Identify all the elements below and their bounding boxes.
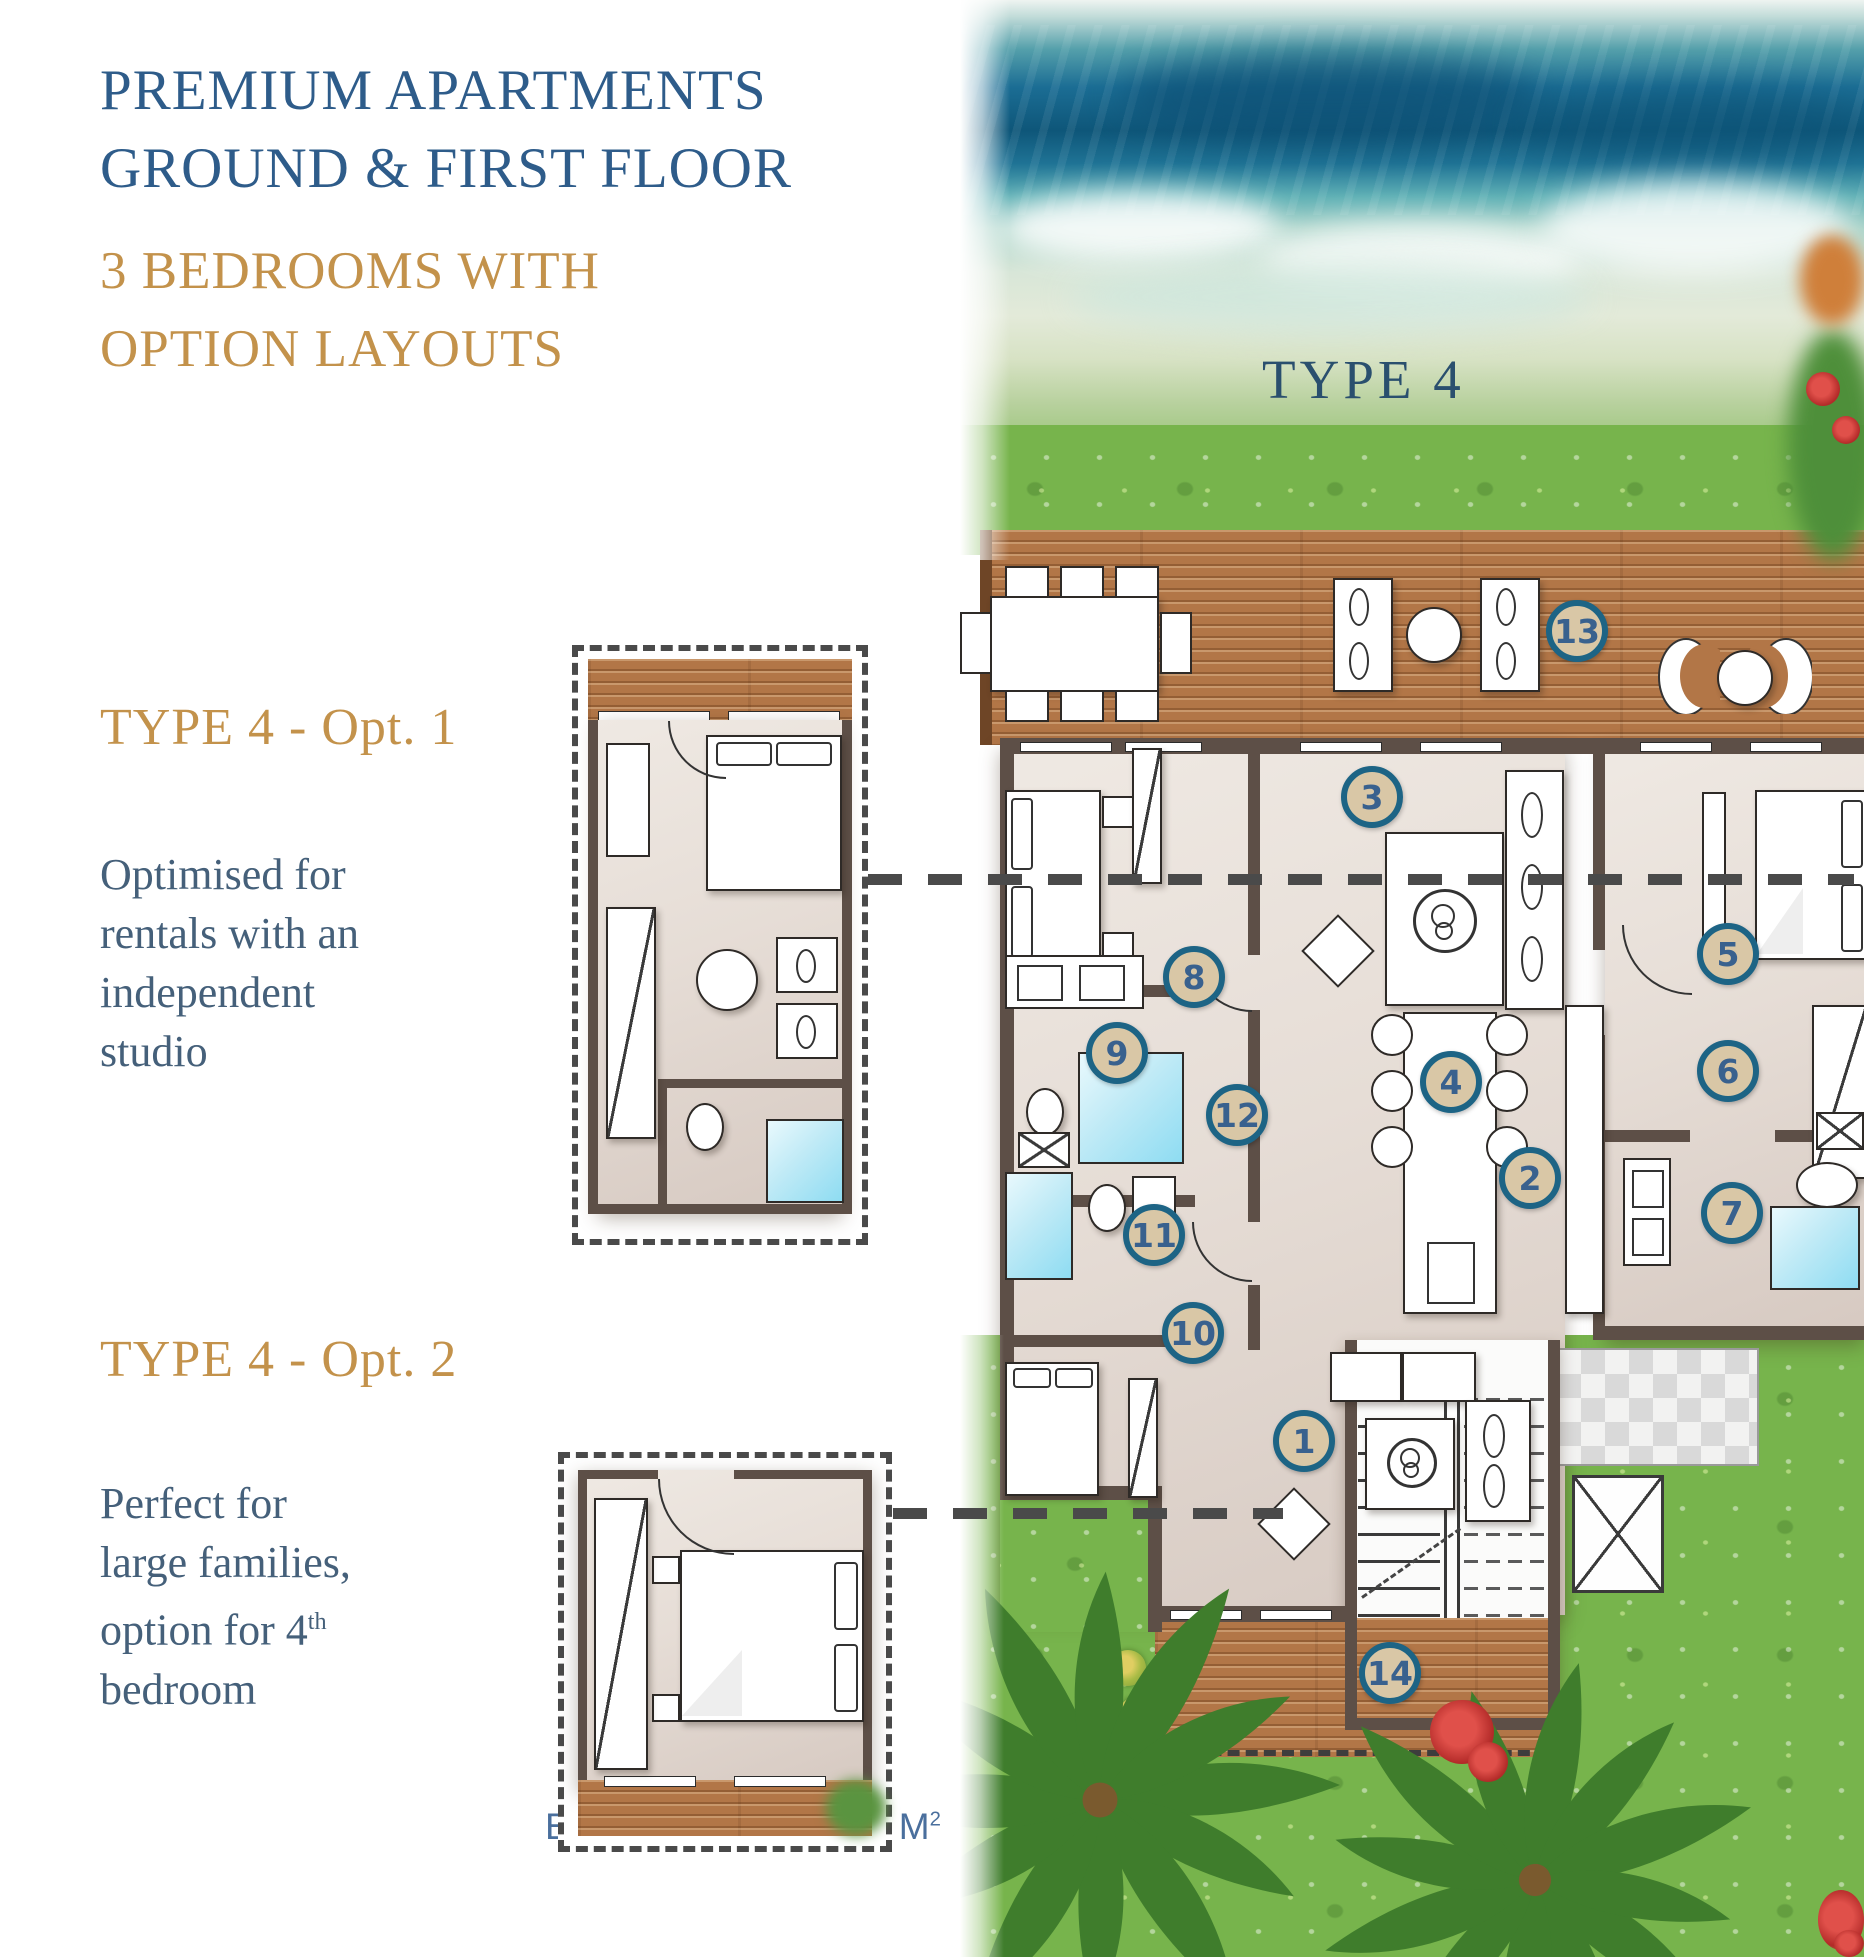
plan-marker-3: 3 — [1341, 766, 1403, 828]
brochure-page: PREMIUM APARTMENTS GROUND & FIRST FLOOR … — [0, 0, 1864, 1957]
bar-stool — [1371, 1126, 1413, 1168]
dining-chair — [960, 612, 992, 674]
page-subtitle: 3 BEDROOMS WITH OPTION LAYOUTS — [100, 232, 600, 388]
shore-wash-blob — [1070, 262, 1590, 332]
red-flowers — [1834, 1930, 1864, 1957]
laundry-unit — [1018, 1132, 1070, 1168]
window — [1300, 742, 1382, 752]
surf-foam-blob — [1000, 192, 1280, 262]
shower — [1005, 1172, 1073, 1280]
watercolor-edge — [960, 1335, 1004, 1957]
wardrobe — [1128, 1378, 1158, 1498]
wall — [658, 1079, 667, 1212]
bar-stool — [1486, 1014, 1528, 1056]
shower — [766, 1119, 844, 1203]
dining-chair — [1005, 690, 1049, 722]
wall — [1605, 1326, 1864, 1340]
dining-chair — [1160, 612, 1192, 674]
option1-section-line — [868, 874, 1854, 885]
page-title: PREMIUM APARTMENTS GROUND & FIRST FLOOR — [100, 52, 792, 208]
plan-type-label: TYPE 4 — [1262, 348, 1465, 411]
toilet — [1088, 1184, 1126, 1232]
window — [1420, 742, 1502, 752]
toilet — [1796, 1162, 1858, 1208]
nightstand — [1102, 796, 1134, 828]
wall — [1605, 1130, 1690, 1142]
option2-description-superscript: th — [308, 1608, 327, 1635]
wall — [588, 1204, 852, 1214]
red-flowers — [1468, 1742, 1508, 1782]
deck-round-table — [1406, 607, 1462, 663]
double-vanity — [1623, 1158, 1671, 1266]
wall — [588, 720, 598, 1212]
deep-wave-blob — [1520, 90, 1860, 160]
bar-stool — [1371, 1014, 1413, 1056]
watercolor-edge — [960, 0, 1010, 560]
plan-marker-13: 13 — [1546, 600, 1608, 662]
bar-stool — [1486, 1070, 1528, 1112]
elevator-shaft — [1572, 1475, 1664, 1593]
window — [734, 1776, 826, 1787]
wall — [578, 1470, 658, 1479]
kitchen-counter — [1565, 1005, 1604, 1314]
sofa-module — [1402, 1352, 1476, 1402]
bar-stool — [1371, 1070, 1413, 1112]
armchair — [776, 1003, 838, 1059]
option1-description: Optimised for rentals with an independen… — [100, 845, 359, 1081]
tiled-patio — [1555, 1348, 1759, 1466]
double-vanity — [1005, 955, 1144, 1009]
bed — [1005, 1362, 1099, 1496]
armchair — [776, 937, 838, 993]
lounge-chair-pair — [1480, 578, 1540, 692]
toilet — [686, 1103, 724, 1151]
laundry-unit — [1816, 1112, 1864, 1150]
wardrobe — [1812, 1005, 1864, 1179]
option2-heading: TYPE 4 - Opt. 2 — [100, 1330, 457, 1389]
wardrobe — [606, 907, 656, 1139]
window — [1020, 742, 1112, 752]
plan-marker-5: 5 — [1697, 923, 1759, 985]
wall — [1248, 738, 1260, 955]
outdoor-dining-table — [990, 596, 1159, 692]
option2-section-line — [893, 1508, 1283, 1519]
plan-marker-6: 6 — [1697, 1040, 1759, 1102]
palm-tree — [960, 1550, 1350, 1957]
option1-floorplan — [572, 645, 868, 1245]
plan-marker-11: 11 — [1123, 1204, 1185, 1266]
dresser — [606, 743, 650, 857]
window — [1750, 742, 1822, 752]
beach-ball-table — [1717, 650, 1773, 706]
foliage — [826, 1780, 886, 1836]
option2-floorplan — [558, 1452, 892, 1852]
plan-marker-4: 4 — [1420, 1051, 1482, 1113]
bed — [706, 735, 842, 891]
dining-chair — [1115, 690, 1159, 722]
nightstand — [652, 1694, 680, 1722]
wall — [734, 1470, 872, 1479]
plan-marker-9: 9 — [1086, 1022, 1148, 1084]
sun-lounger — [1658, 638, 1720, 714]
shower — [1770, 1206, 1860, 1290]
bed — [680, 1550, 864, 1722]
lounge-chair-pair — [1333, 578, 1393, 692]
deep-wave-blob — [1120, 55, 1540, 140]
nightstand — [652, 1556, 680, 1584]
round-table — [696, 949, 758, 1011]
bedroom-bench — [1702, 792, 1726, 938]
plan-marker-14: 14 — [1359, 1642, 1421, 1704]
tv-dresser — [1385, 832, 1504, 1006]
wardrobe — [594, 1498, 648, 1770]
plan-marker-12: 12 — [1206, 1084, 1268, 1146]
wardrobe — [1132, 748, 1162, 884]
chaise-lounge — [1465, 1400, 1531, 1522]
plan-marker-10: 10 — [1162, 1302, 1224, 1364]
wall — [863, 1470, 872, 1788]
wall — [1593, 738, 1605, 950]
red-flowers — [1806, 372, 1840, 406]
plan-marker-8: 8 — [1163, 946, 1225, 1008]
toilet — [1026, 1088, 1064, 1136]
window — [604, 1776, 696, 1787]
option2-description: Perfect for large families, option for 4… — [100, 1474, 351, 1719]
plan-marker-2: 2 — [1499, 1147, 1561, 1209]
option1-heading: TYPE 4 - Opt. 1 — [100, 698, 457, 757]
dining-chair — [1005, 566, 1049, 598]
kitchen-cabinet-column — [1505, 770, 1564, 1010]
wall — [1248, 1285, 1260, 1350]
orange-plant — [1800, 235, 1864, 325]
plan-marker-7: 7 — [1701, 1182, 1763, 1244]
plan-marker-1: 1 — [1273, 1410, 1335, 1472]
red-flowers — [1832, 416, 1860, 444]
coffee-table — [1365, 1418, 1455, 1510]
sofa-module — [1330, 1352, 1402, 1402]
wall — [658, 1079, 852, 1088]
wall — [578, 1470, 587, 1788]
caption-superscript: 2 — [930, 1809, 941, 1831]
window — [1640, 742, 1712, 752]
dining-chair — [1060, 690, 1104, 722]
option2-description-tail: bedroom — [100, 1665, 256, 1714]
dining-chair — [1060, 566, 1104, 598]
dining-chair — [1115, 566, 1159, 598]
